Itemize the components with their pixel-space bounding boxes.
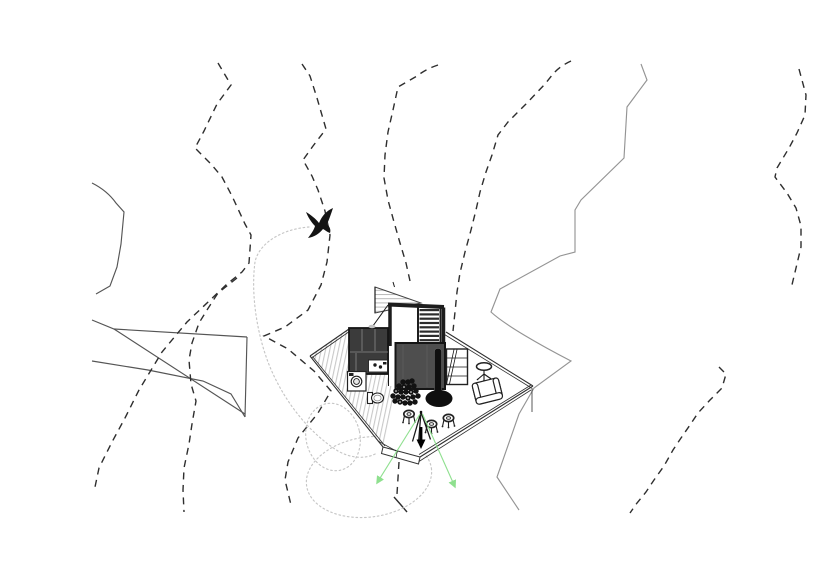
staircase <box>420 309 440 346</box>
cabin-group <box>310 282 533 464</box>
toilet-icon <box>368 393 384 404</box>
contour-line <box>397 462 399 494</box>
hob-burner <box>373 363 376 366</box>
wall-top <box>388 305 444 308</box>
contour-line <box>453 61 571 331</box>
contour-line <box>183 278 237 512</box>
shelf-unit <box>447 349 468 385</box>
rock-outcrop-line <box>92 320 247 337</box>
contour-line <box>630 367 726 513</box>
contour-line <box>384 65 438 281</box>
counter-item <box>383 362 387 365</box>
site-plan-svg <box>0 0 818 579</box>
hob-burner <box>379 365 382 368</box>
contour-line <box>264 64 331 505</box>
contour-line <box>775 69 806 289</box>
rock-outcrop-line <box>92 361 245 417</box>
kitchen-counter <box>369 360 388 372</box>
rock-outcrop-line <box>92 183 124 294</box>
contour-line <box>95 63 251 487</box>
kitchen-sink <box>369 325 376 329</box>
rock-outcrop-line <box>245 337 247 417</box>
contour-line <box>394 497 407 512</box>
drawing-canvas <box>0 0 818 579</box>
terrain-ridge-line <box>491 64 647 510</box>
corridor <box>389 346 396 386</box>
terrain-group <box>92 61 806 513</box>
bird-icon <box>306 208 333 238</box>
washing-machine-icon <box>348 372 367 392</box>
roof-tick <box>393 282 395 287</box>
